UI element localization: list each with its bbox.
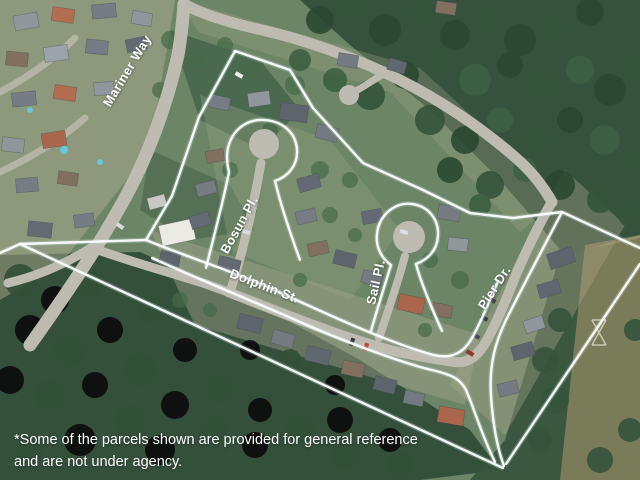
disclaimer-line-1: *Some of the parcels shown are provided … xyxy=(14,432,418,448)
aerial-parcel-map: Mariner Way Bosun Pl. Dolphin St. Sail P… xyxy=(0,0,640,480)
aerial-photo: Mariner Way Bosun Pl. Dolphin St. Sail P… xyxy=(0,0,640,480)
disclaimer-line-2: and are not under agency. xyxy=(14,454,182,470)
